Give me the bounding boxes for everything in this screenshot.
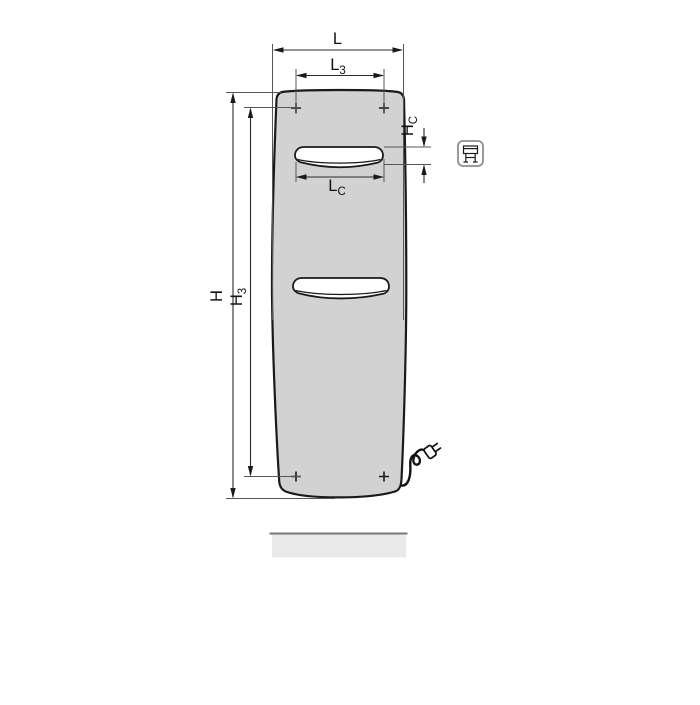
dimension-L-label: L	[333, 30, 342, 48]
radiator-profile-icon	[458, 141, 483, 166]
dimension-L3-label: L3	[330, 56, 346, 77]
floor-shadow-bar	[270, 534, 408, 558]
power-plug-icon	[423, 441, 443, 460]
dimension-H3-label: H3	[228, 288, 249, 306]
power-cord	[402, 450, 427, 486]
middle-handle-slot	[293, 278, 389, 298]
top-handle-slot	[295, 147, 383, 167]
radiator-dimension-drawing: L L3 LC H H3	[0, 0, 700, 700]
drawing-canvas: L L3 LC H H3	[0, 0, 700, 700]
dimension-H-label: H	[208, 290, 226, 302]
